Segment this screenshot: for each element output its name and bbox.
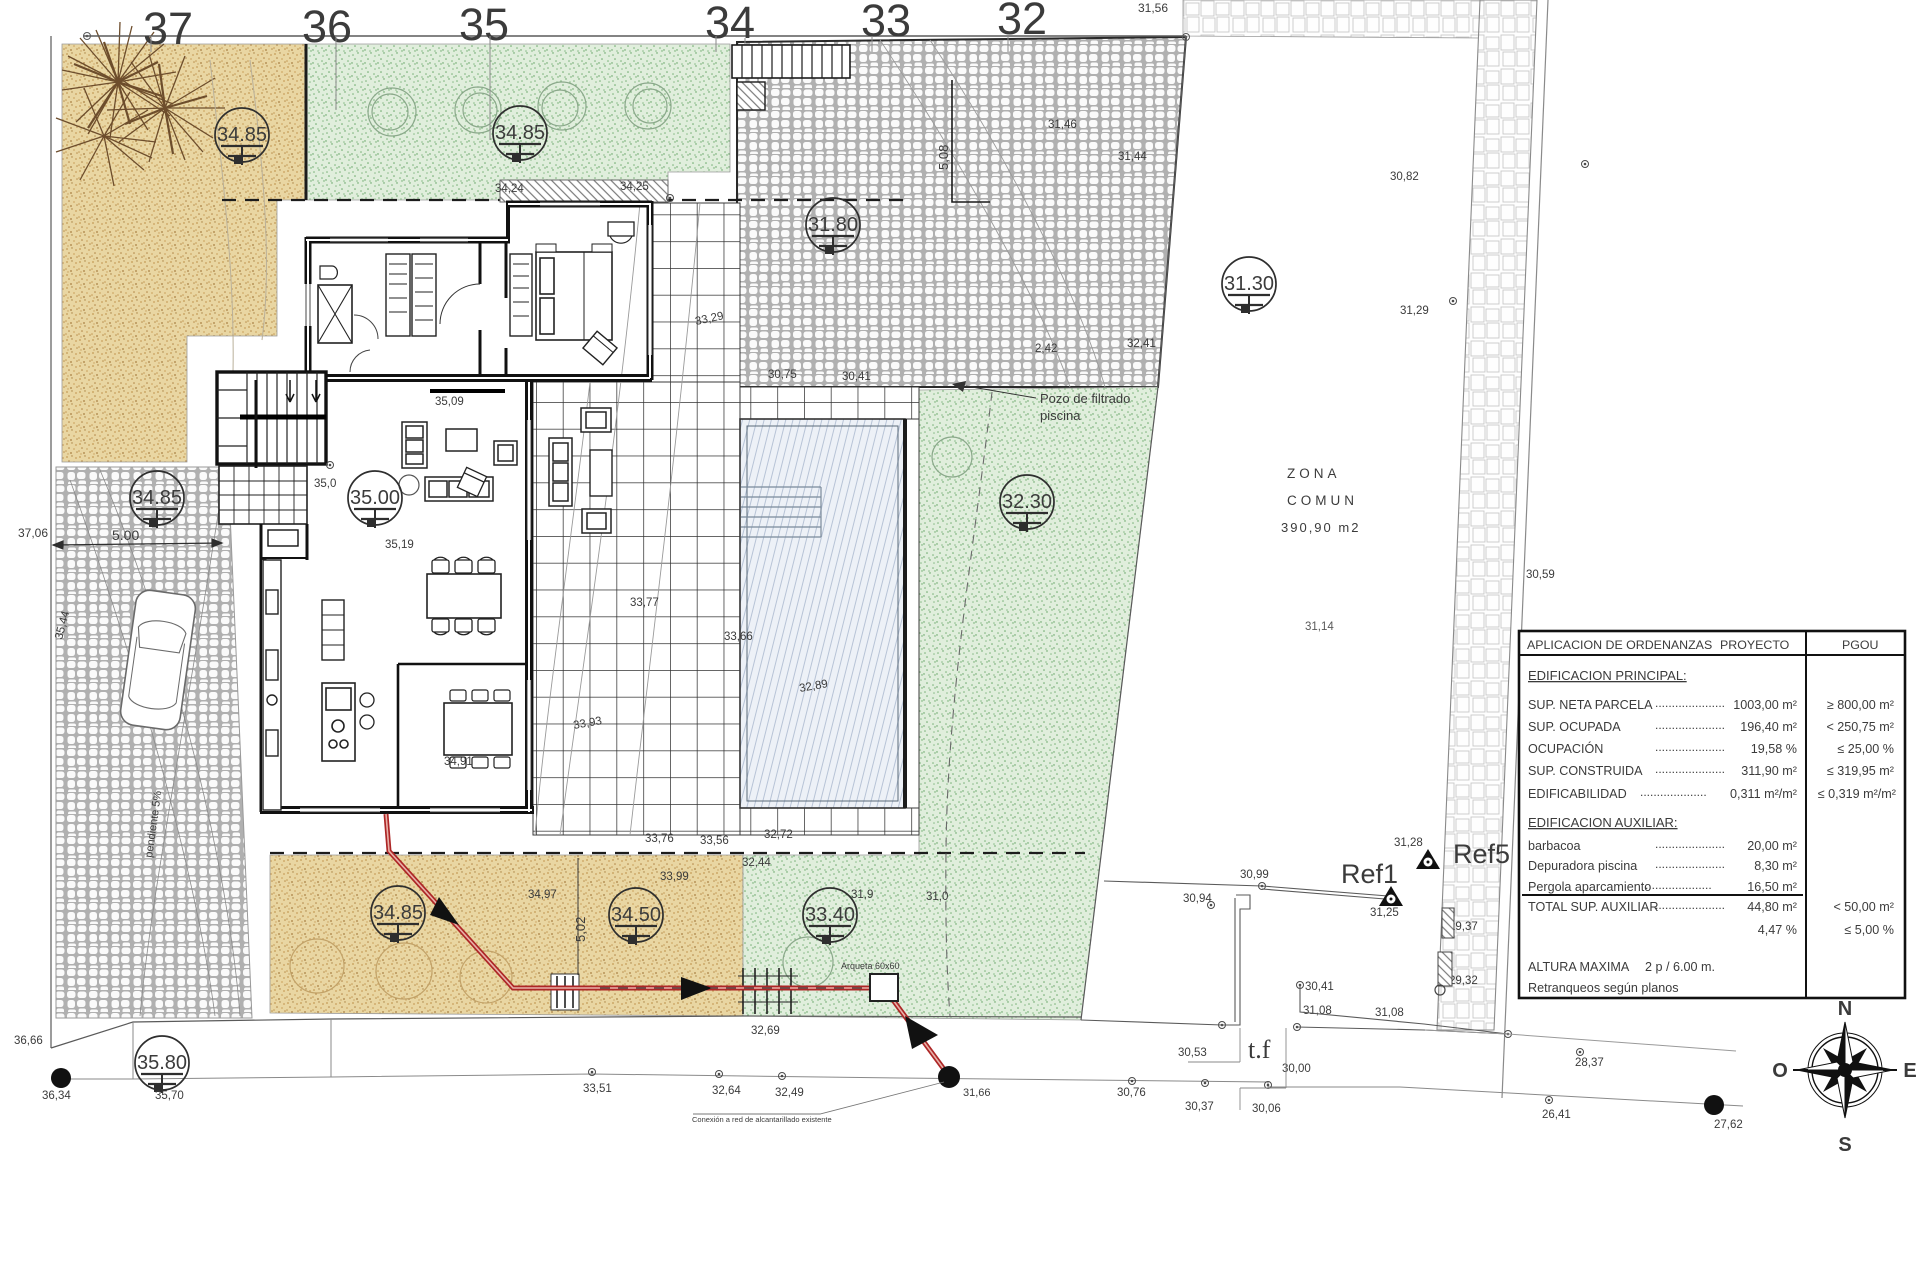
svg-text:< 250,75 m²: < 250,75 m²	[1826, 720, 1894, 734]
svg-text:....................: ....................	[1640, 785, 1707, 799]
svg-text:30,06: 30,06	[1252, 1103, 1281, 1115]
svg-text:.....................: .....................	[1655, 762, 1725, 776]
svg-text:30,82: 30,82	[1390, 171, 1419, 183]
svg-text:35,09: 35,09	[435, 396, 464, 408]
svg-text:O: O	[1772, 1060, 1788, 1082]
svg-text:19,58 %: 19,58 %	[1751, 742, 1797, 756]
svg-text:35,70: 35,70	[155, 1090, 184, 1102]
svg-text:31,29: 31,29	[1400, 305, 1429, 317]
svg-text:2,42: 2,42	[1035, 343, 1057, 355]
svg-text:44,80 m²: 44,80 m²	[1747, 900, 1797, 914]
svg-text:31,44: 31,44	[1118, 151, 1147, 163]
svg-text:APLICACION DE ORDENANZAS: APLICACION DE ORDENANZAS	[1527, 638, 1712, 652]
svg-text:≤ 319,95 m²: ≤ 319,95 m²	[1827, 764, 1894, 778]
svg-text:196,40 m²: 196,40 m²	[1740, 720, 1797, 734]
svg-text:33.40: 33.40	[805, 904, 855, 926]
svg-text:35,19: 35,19	[385, 539, 414, 551]
svg-text:31,66: 31,66	[963, 1087, 991, 1099]
svg-text:5,08: 5,08	[936, 145, 951, 170]
svg-text:30,76: 30,76	[1117, 1087, 1146, 1099]
svg-text:31,08: 31,08	[1375, 1007, 1404, 1019]
svg-text:Ref5: Ref5	[1453, 839, 1510, 869]
svg-text:31,14: 31,14	[1305, 621, 1334, 633]
svg-text:Depuradora piscina: Depuradora piscina	[1528, 859, 1637, 873]
svg-text:5.00: 5.00	[112, 527, 139, 543]
svg-text:34.85: 34.85	[132, 487, 182, 509]
svg-text:31,25: 31,25	[1370, 907, 1399, 919]
svg-text:SUP. OCUPADA: SUP. OCUPADA	[1528, 720, 1621, 734]
svg-text:32,44: 32,44	[742, 857, 771, 869]
svg-text:.....................: .....................	[1655, 718, 1725, 732]
svg-text:30,75: 30,75	[768, 369, 797, 381]
svg-text:34,97: 34,97	[528, 889, 557, 901]
svg-text:37,06: 37,06	[18, 526, 48, 540]
svg-text:27,62: 27,62	[1714, 1119, 1743, 1131]
svg-text:≥ 800,00 m²: ≥ 800,00 m²	[1827, 698, 1894, 712]
svg-text:35.80: 35.80	[137, 1052, 187, 1074]
svg-text:34.85: 34.85	[373, 902, 423, 924]
svg-text:32: 32	[997, 0, 1047, 44]
svg-text:34,91: 34,91	[444, 756, 473, 768]
svg-text:30,37: 30,37	[1185, 1101, 1214, 1113]
svg-text:33,76: 33,76	[645, 833, 674, 845]
svg-text:1003,00 m²: 1003,00 m²	[1733, 698, 1797, 712]
svg-text:33,99: 33,99	[660, 871, 689, 883]
svg-text:37: 37	[143, 3, 193, 54]
svg-text:PGOU: PGOU	[1842, 638, 1879, 652]
svg-text:ALTURA MAXIMA: ALTURA MAXIMA	[1528, 960, 1630, 974]
svg-text:COMUN: COMUN	[1287, 493, 1358, 508]
svg-text:30,41: 30,41	[842, 371, 871, 383]
svg-text:.....................: .....................	[1655, 898, 1725, 912]
svg-text:34: 34	[705, 0, 755, 48]
svg-text:33,77: 33,77	[630, 597, 659, 609]
svg-text:TOTAL SUP. AUXILIAR: TOTAL SUP. AUXILIAR	[1528, 900, 1658, 914]
svg-text:OCUPACIÓN: OCUPACIÓN	[1528, 741, 1603, 756]
svg-text:Retranqueos según planos: Retranqueos según planos	[1528, 981, 1679, 995]
svg-text:0,311 m²/m²: 0,311 m²/m²	[1730, 787, 1797, 801]
svg-text:ZONA: ZONA	[1287, 466, 1341, 481]
svg-text:32,64: 32,64	[712, 1085, 741, 1097]
svg-text:32,69: 32,69	[751, 1025, 780, 1037]
svg-text:31,9: 31,9	[851, 889, 873, 901]
svg-text:36: 36	[302, 1, 352, 52]
svg-text:E: E	[1903, 1060, 1916, 1082]
svg-text:SUP. NETA PARCELA: SUP. NETA PARCELA	[1528, 698, 1653, 712]
svg-text:≤ 25,00 %: ≤ 25,00 %	[1837, 742, 1894, 756]
svg-text:PROYECTO: PROYECTO	[1720, 638, 1790, 652]
svg-text:≤ 0,319 m²/m²: ≤ 0,319 m²/m²	[1818, 787, 1896, 801]
svg-text:.....................: .....................	[1655, 857, 1725, 871]
svg-text:2 p / 6.00 m.: 2 p / 6.00 m.	[1645, 960, 1715, 974]
svg-text:≤ 5,00 %: ≤ 5,00 %	[1844, 923, 1894, 937]
svg-text:.....................: .....................	[1655, 696, 1725, 710]
svg-text:Pozo de filtrado: Pozo de filtrado	[1040, 391, 1130, 406]
svg-text:33: 33	[861, 0, 911, 46]
svg-text:33,51: 33,51	[583, 1083, 612, 1095]
svg-text:N: N	[1838, 998, 1852, 1020]
svg-text:32,72: 32,72	[764, 829, 793, 841]
svg-text:30,99: 30,99	[1240, 869, 1269, 881]
svg-text:EDIFICABILIDAD: EDIFICABILIDAD	[1528, 787, 1627, 801]
svg-text:Arqueta 60x60: Arqueta 60x60	[841, 961, 900, 971]
svg-text:35,0: 35,0	[314, 478, 336, 490]
svg-text:34.85: 34.85	[217, 124, 267, 146]
svg-text:30,53: 30,53	[1178, 1047, 1207, 1059]
svg-text:31,56: 31,56	[1138, 1, 1168, 15]
svg-text:8,30 m²: 8,30 m²	[1754, 859, 1797, 873]
svg-text:EDIFICACION PRINCIPAL:: EDIFICACION PRINCIPAL:	[1528, 668, 1687, 683]
svg-text:5,02: 5,02	[573, 917, 588, 942]
svg-text:EDIFICACION AUXILIAR:: EDIFICACION AUXILIAR:	[1528, 815, 1678, 830]
svg-text:31.30: 31.30	[1224, 273, 1274, 295]
svg-text:31,0: 31,0	[926, 891, 948, 903]
svg-text:Ref1: Ref1	[1341, 859, 1398, 889]
svg-text:piscina: piscina	[1040, 408, 1081, 423]
svg-text:390,90 m2: 390,90 m2	[1281, 520, 1360, 535]
svg-text:311,90 m²: 311,90 m²	[1741, 764, 1797, 778]
svg-text:16,50 m²: 16,50 m²	[1747, 880, 1797, 894]
svg-text:35: 35	[459, 0, 509, 50]
svg-text:S: S	[1838, 1134, 1851, 1156]
svg-text:4,47 %: 4,47 %	[1758, 923, 1797, 937]
svg-text:32,41: 32,41	[1127, 338, 1156, 350]
svg-text:36,66: 36,66	[14, 1035, 43, 1047]
svg-text:35.00: 35.00	[350, 487, 400, 509]
svg-text:20,00 m²: 20,00 m²	[1747, 839, 1797, 853]
svg-text:31.80: 31.80	[808, 214, 858, 236]
svg-text:33,66: 33,66	[724, 631, 753, 643]
svg-text:.....................: .....................	[1655, 837, 1725, 851]
svg-text:36,34: 36,34	[42, 1090, 71, 1102]
svg-text:Conexión a red de alcantarilla: Conexión a red de alcantarillado existen…	[692, 1115, 832, 1124]
svg-text:28,37: 28,37	[1575, 1057, 1604, 1069]
svg-text:< 50,00 m²: < 50,00 m²	[1833, 900, 1894, 914]
svg-text:barbacoa: barbacoa	[1528, 839, 1581, 853]
svg-text:34,24: 34,24	[495, 183, 524, 195]
svg-text:SUP. CONSTRUIDA: SUP. CONSTRUIDA	[1528, 764, 1643, 778]
svg-text:....................: ....................	[1645, 878, 1712, 892]
svg-text:32.30: 32.30	[1002, 491, 1052, 513]
svg-text:31,28: 31,28	[1394, 837, 1423, 849]
svg-text:32,49: 32,49	[775, 1087, 804, 1099]
svg-text:30,59: 30,59	[1526, 569, 1555, 581]
svg-text:34.50: 34.50	[611, 904, 661, 926]
svg-text:34,25: 34,25	[620, 181, 649, 193]
svg-text:.....................: .....................	[1655, 740, 1725, 754]
svg-text:30,41: 30,41	[1305, 981, 1334, 993]
svg-text:26,41: 26,41	[1542, 1109, 1571, 1121]
svg-text:29,32: 29,32	[1449, 975, 1478, 987]
svg-text:34.85: 34.85	[495, 122, 545, 144]
svg-text:33,56: 33,56	[700, 835, 729, 847]
svg-text:Pergola aparcamiento: Pergola aparcamiento	[1528, 880, 1651, 894]
svg-text:t.f: t.f	[1248, 1035, 1271, 1064]
